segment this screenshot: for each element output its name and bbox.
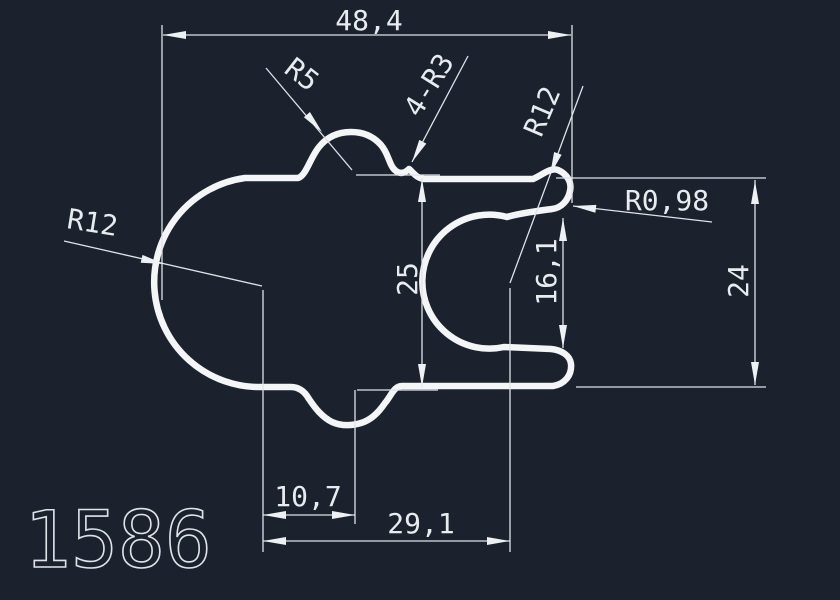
dim-total-width: 48,4	[162, 4, 572, 300]
radius-r12-right-label: R12	[517, 82, 567, 141]
arrowhead	[559, 218, 567, 241]
dim-body-height-label: 25	[391, 262, 424, 296]
leader-4r3: 4-R3	[397, 48, 468, 164]
radius-4r3-label: 4-R3	[397, 48, 461, 123]
dim-bottom-offset-small: 10,7	[263, 290, 355, 552]
radius-r12-left-label: R12	[65, 202, 120, 243]
part-number: 1586	[24, 496, 212, 586]
arrowhead	[163, 31, 186, 39]
arrowhead	[548, 31, 571, 39]
cad-viewport: 48,4 25 16,1 24 10,7	[0, 0, 840, 600]
dim-total-width-label: 48,4	[335, 4, 402, 37]
leader-r098: R0,98	[573, 184, 712, 222]
profile-outline	[154, 132, 571, 425]
arrowhead	[408, 140, 426, 164]
radius-r098-label: R0,98	[625, 184, 709, 217]
arrowhead	[418, 179, 426, 202]
arrowhead	[573, 202, 597, 213]
arrowhead	[304, 112, 325, 135]
arrowhead	[751, 181, 759, 204]
dim-right-arm-height-label: 24	[722, 264, 755, 298]
arrowhead	[559, 325, 567, 348]
dim-opening-height: 16,1	[530, 218, 567, 348]
leader-r5: R5	[266, 51, 352, 170]
dim-body-height: 25	[356, 175, 440, 390]
dim-opening-height-label: 16,1	[530, 238, 563, 305]
arrowhead	[751, 362, 759, 385]
cad-drawing: 48,4 25 16,1 24 10,7	[0, 0, 840, 600]
dim-bottom-offset-small-label: 10,7	[274, 480, 341, 513]
dim-bottom-offset-large-label: 29,1	[387, 507, 454, 540]
arrowhead	[263, 537, 286, 545]
arrowhead	[487, 537, 510, 545]
